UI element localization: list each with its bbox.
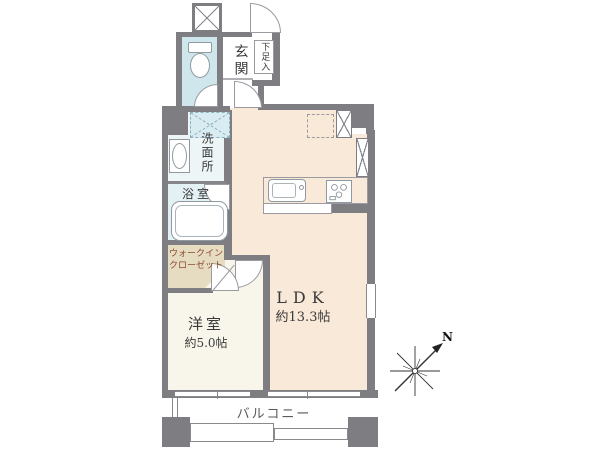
walk-in-closet-label: ウォークイン クローゼット [166,249,226,272]
refrigerator-space-icon [307,114,334,138]
balcony-connector [172,398,178,417]
washbasin-bowl [172,143,187,169]
toilet-icon [188,42,212,53]
bedroom-name: 洋室 [166,315,246,334]
compass-n-label: N [442,330,453,344]
balcony-pillar-left [162,417,190,447]
balcony-railing-right [274,428,348,440]
toilet-bowl [190,53,210,78]
pipe-shaft-icon [356,138,369,177]
balcony-label: バルコニー [234,407,314,423]
genkan-step-line [223,78,253,80]
pipe-shaft-icon [336,110,352,138]
kitchen-sink-basin [272,183,296,198]
kitchen-faucet [299,185,304,190]
stove-icon [326,180,352,203]
window-ldk-tick [307,391,308,399]
walk-in-closet-label-line1: ウォークイン [166,249,226,261]
wall-kitchen-stub [330,203,368,213]
kitchen-counter-front [263,203,332,214]
window-bedroom-tick [217,391,218,399]
balcony-pillar-right [348,417,378,447]
genkan-label: 玄関 [231,44,249,78]
window-right [366,284,376,318]
bedroom-size: 約5.0帖 [166,336,246,351]
bedroom-label: 洋室 約5.0帖 [166,315,246,351]
washroom-label: 洗面所 [199,132,214,174]
ldk-label: LDK 約13.3帖 [263,288,343,326]
window-ldk [268,391,360,397]
wall-below-shoe-cabinet [252,80,280,86]
bathtub-inner [175,205,224,237]
balcony-railing-left [190,423,274,442]
window-bedroom [175,391,250,397]
wall-corner-notch [350,128,366,134]
wall-closet-bottom [162,288,213,293]
ldk-name: LDK [263,288,343,308]
wall-bedroom-ldk [263,258,270,398]
shoe-cabinet-label: 下足入 [258,42,269,72]
compass-north-icon: N [385,328,457,400]
bathroom-label: 浴室 [182,187,226,202]
ldk-size: 約13.3帖 [263,310,343,326]
floor-plan: 下足入 玄関 洗面所 浴室 ウォークイン クローゼット [0,0,600,450]
front-door-swing [250,3,281,33]
walk-in-closet-label-line2: クローゼット [166,261,226,273]
wall-entrance-left [176,32,182,110]
pipe-shaft-icon [192,3,222,33]
